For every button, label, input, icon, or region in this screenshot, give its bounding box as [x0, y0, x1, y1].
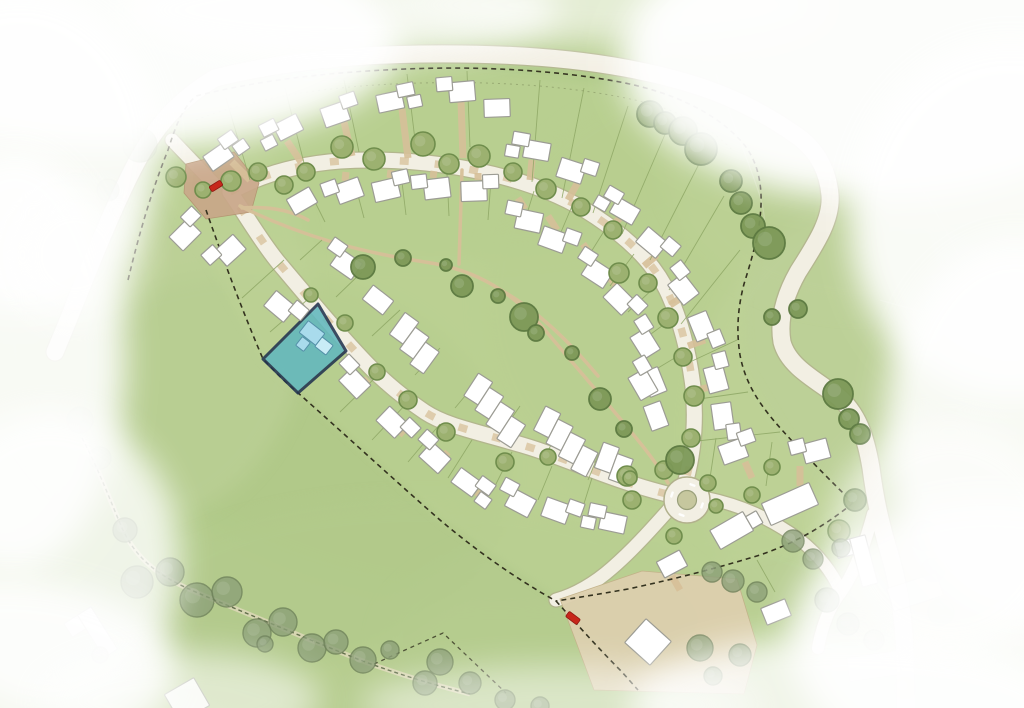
tree-highlight: [514, 307, 527, 320]
house-block: [407, 94, 423, 109]
tree-highlight: [328, 634, 339, 645]
tree-highlight: [355, 259, 366, 270]
tree: [609, 263, 629, 283]
tree-highlight: [442, 157, 451, 166]
tree: [249, 163, 267, 181]
tree: [753, 227, 785, 259]
tree-highlight: [642, 277, 650, 285]
tree-highlight: [785, 533, 795, 543]
house-block: [410, 174, 428, 190]
tree-highlight: [766, 461, 773, 468]
tree: [682, 429, 700, 447]
tree: [257, 636, 273, 652]
tree-highlight: [454, 278, 464, 288]
tree: [369, 364, 385, 380]
tree: [572, 198, 590, 216]
tree-highlight: [507, 166, 515, 174]
tree: [350, 647, 376, 673]
tree: [166, 167, 186, 187]
tree: [298, 634, 326, 662]
tree: [468, 145, 490, 167]
tree: [684, 386, 704, 406]
tree-highlight: [745, 218, 756, 229]
tree-highlight: [397, 252, 404, 259]
tree-highlight: [302, 638, 315, 651]
tree-highlight: [658, 464, 666, 472]
site-plan: [0, 0, 1024, 708]
tree-highlight: [252, 166, 260, 174]
tree: [744, 487, 760, 503]
tree-highlight: [542, 451, 549, 458]
tree-highlight: [853, 427, 862, 436]
tree-highlight: [306, 290, 312, 296]
tree-highlight: [499, 456, 507, 464]
house-block: [391, 169, 410, 186]
driveway: [390, 170, 391, 178]
tree: [528, 325, 544, 341]
tree: [639, 274, 657, 292]
tree: [700, 475, 716, 491]
tree-highlight: [224, 174, 233, 183]
tree-highlight: [575, 201, 583, 209]
tree: [730, 192, 752, 214]
tree-highlight: [625, 473, 631, 479]
tree-highlight: [626, 494, 634, 502]
tree-highlight: [431, 653, 443, 665]
tree-highlight: [493, 291, 499, 297]
tree-highlight: [758, 232, 772, 246]
tree: [381, 641, 399, 659]
tree: [304, 288, 318, 302]
tree: [351, 255, 375, 279]
tree-highlight: [612, 266, 621, 275]
tree-highlight: [217, 582, 231, 596]
tree-highlight: [792, 303, 800, 311]
tree: [496, 453, 514, 471]
house: [484, 99, 511, 118]
roundabout-island: [678, 491, 697, 510]
tree-highlight: [169, 170, 178, 179]
driveway: [433, 171, 434, 178]
tree-highlight: [711, 501, 717, 507]
tree: [363, 148, 385, 170]
tree: [823, 379, 853, 409]
tree-highlight: [607, 224, 615, 232]
tree: [195, 182, 211, 198]
tree: [850, 424, 870, 444]
tree-highlight: [842, 412, 851, 421]
tree-highlight: [415, 136, 426, 147]
house-block: [505, 200, 524, 217]
tree: [337, 315, 353, 331]
tree-highlight: [702, 477, 709, 484]
tree-highlight: [705, 565, 714, 574]
tree: [451, 275, 473, 297]
tree: [709, 499, 723, 513]
tree-highlight: [185, 588, 200, 603]
tree-highlight: [661, 311, 670, 320]
tree: [604, 221, 622, 239]
tree-highlight: [530, 327, 537, 334]
tree: [212, 577, 242, 607]
tree-highlight: [725, 573, 735, 583]
tree: [789, 300, 807, 318]
tree: [722, 570, 744, 592]
tree: [221, 171, 241, 191]
tree: [702, 562, 722, 582]
tree: [764, 459, 780, 475]
house-block: [436, 76, 453, 91]
tree-highlight: [247, 623, 260, 636]
tree: [399, 391, 417, 409]
driveway: [345, 172, 346, 181]
tree: [666, 528, 682, 544]
tree-highlight: [687, 389, 696, 398]
tree-highlight: [384, 644, 392, 652]
tree: [616, 421, 632, 437]
tree: [180, 583, 214, 617]
tree: [437, 423, 455, 441]
tree: [623, 471, 637, 485]
tree-highlight: [691, 639, 703, 651]
tree: [589, 388, 611, 410]
tree-highlight: [766, 311, 773, 318]
tree-highlight: [539, 182, 548, 191]
house-block: [482, 174, 498, 189]
tree-highlight: [677, 351, 685, 359]
tree: [297, 163, 315, 181]
tree-highlight: [750, 585, 759, 594]
tree: [331, 136, 353, 158]
tree: [623, 491, 641, 509]
house-block: [484, 99, 511, 118]
tree-highlight: [300, 166, 308, 174]
tree: [747, 582, 767, 602]
tree-highlight: [273, 612, 286, 625]
white-wash: [5, 185, 145, 325]
tree: [674, 348, 692, 366]
house-block: [504, 144, 520, 158]
tree-highlight: [746, 489, 753, 496]
tree-highlight: [354, 651, 366, 663]
tree-highlight: [567, 348, 573, 354]
tree-highlight: [371, 366, 378, 373]
tree-highlight: [685, 432, 693, 440]
tree-highlight: [806, 552, 815, 561]
tree-highlight: [670, 450, 683, 463]
tree-highlight: [733, 195, 743, 205]
tree-highlight: [334, 139, 344, 149]
tree-highlight: [442, 261, 447, 266]
tree: [764, 309, 780, 325]
house-block: [580, 515, 596, 530]
tree: [565, 346, 579, 360]
tree-highlight: [402, 394, 410, 402]
site-plan-svg: [0, 0, 1024, 708]
tree: [269, 608, 297, 636]
driveway: [461, 101, 463, 158]
tree: [439, 154, 459, 174]
tree-highlight: [366, 151, 376, 161]
tree: [324, 630, 348, 654]
tree: [491, 289, 505, 303]
tree: [427, 649, 453, 675]
tree-highlight: [197, 184, 204, 191]
house-block: [512, 131, 531, 147]
tree: [395, 250, 411, 266]
tree-highlight: [471, 148, 481, 158]
tree-highlight: [668, 530, 675, 537]
tree-highlight: [278, 179, 286, 187]
tree: [803, 549, 823, 569]
tree-highlight: [259, 638, 266, 645]
tree-highlight: [618, 423, 625, 430]
tree: [666, 446, 694, 474]
driveway: [530, 160, 532, 180]
tree: [440, 259, 452, 271]
tree-highlight: [592, 391, 602, 401]
tree: [411, 132, 435, 156]
tree: [658, 308, 678, 328]
tree-highlight: [339, 317, 346, 324]
tree: [504, 163, 522, 181]
tree: [782, 530, 804, 552]
tree-highlight: [828, 384, 842, 398]
tree-highlight: [440, 426, 448, 434]
tree: [536, 179, 556, 199]
tree: [540, 449, 556, 465]
tree: [275, 176, 293, 194]
